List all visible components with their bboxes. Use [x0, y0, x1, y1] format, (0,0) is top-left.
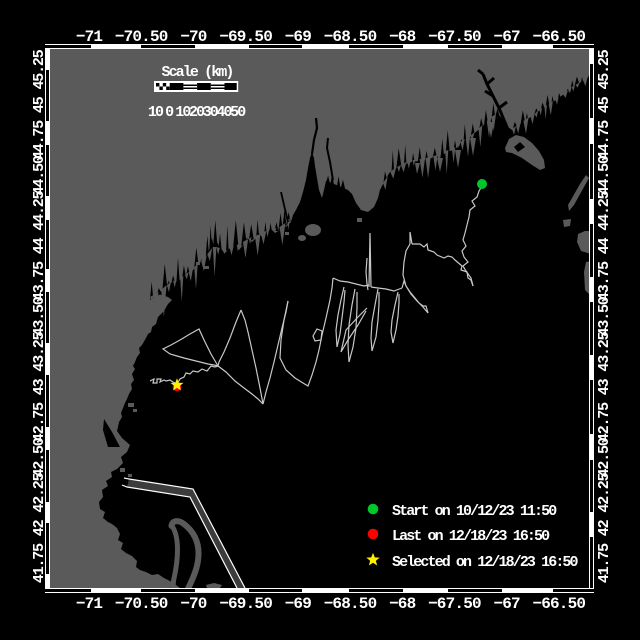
svg-text:−70.50: −70.50 [115, 595, 168, 613]
svg-text:43.50: 43.50 [31, 296, 48, 336]
svg-text:45.25: 45.25 [596, 49, 613, 89]
svg-text:42.25: 42.25 [31, 472, 48, 512]
svg-text:42.75: 42.75 [31, 402, 48, 442]
svg-text:−71: −71 [76, 28, 103, 46]
svg-text:−69: −69 [285, 28, 312, 46]
svg-text:−69.50: −69.50 [219, 595, 272, 613]
svg-text:43.75: 43.75 [31, 261, 48, 301]
svg-text:−70.50: −70.50 [115, 28, 168, 46]
svg-text:−68: −68 [389, 595, 416, 613]
svg-text:−66.50: −66.50 [532, 28, 585, 46]
svg-text:−67: −67 [493, 595, 520, 613]
svg-text:−68: −68 [389, 28, 416, 46]
svg-text:41.75: 41.75 [596, 543, 613, 583]
svg-text:−68.50: −68.50 [324, 28, 377, 46]
svg-text:45.25: 45.25 [31, 49, 48, 89]
svg-text:44: 44 [31, 237, 48, 254]
svg-text:44.25: 44.25 [596, 190, 613, 230]
svg-text:41.75: 41.75 [31, 543, 48, 583]
svg-text:43.25: 43.25 [596, 331, 613, 371]
svg-text:−71: −71 [76, 595, 103, 613]
svg-text:42.75: 42.75 [596, 402, 613, 442]
svg-text:44.25: 44.25 [31, 190, 48, 230]
svg-text:44.50: 44.50 [31, 155, 48, 195]
svg-text:43.75: 43.75 [596, 261, 613, 301]
svg-text:Scale (km): Scale (km) [161, 64, 232, 81]
svg-text:−69.50: −69.50 [219, 28, 272, 46]
svg-text:Start on 10/12/23 11:50: Start on 10/12/23 11:50 [392, 503, 557, 520]
svg-text:−68.50: −68.50 [324, 595, 377, 613]
svg-text:44.75: 44.75 [596, 120, 613, 160]
svg-text:43.25: 43.25 [31, 331, 48, 371]
svg-text:10: 10 [148, 104, 164, 121]
svg-text:42: 42 [596, 519, 613, 536]
svg-text:42.50: 42.50 [596, 437, 613, 477]
svg-text:44: 44 [596, 237, 613, 254]
svg-text:−66.50: −66.50 [532, 595, 585, 613]
svg-text:42.25: 42.25 [596, 472, 613, 512]
svg-text:45: 45 [31, 96, 48, 113]
svg-text:Last on 12/18/23 16:50: Last on 12/18/23 16:50 [392, 528, 550, 545]
svg-text:44.50: 44.50 [596, 155, 613, 195]
svg-text:42.50: 42.50 [31, 437, 48, 477]
svg-text:43: 43 [596, 378, 613, 395]
svg-text:−69: −69 [285, 595, 312, 613]
svg-text:−70: −70 [180, 28, 207, 46]
svg-text:43.50: 43.50 [596, 296, 613, 336]
svg-text:−70: −70 [180, 595, 207, 613]
svg-text:−67: −67 [493, 28, 520, 46]
svg-text:50: 50 [230, 104, 246, 121]
svg-text:−67.50: −67.50 [428, 595, 481, 613]
svg-text:43: 43 [31, 378, 48, 395]
svg-text:−67.50: −67.50 [428, 28, 481, 46]
svg-text:Selected on 12/18/23 16:50: Selected on 12/18/23 16:50 [392, 554, 579, 571]
svg-text:45: 45 [596, 96, 613, 113]
svg-text:44.75: 44.75 [31, 120, 48, 160]
svg-text:42: 42 [31, 519, 48, 536]
